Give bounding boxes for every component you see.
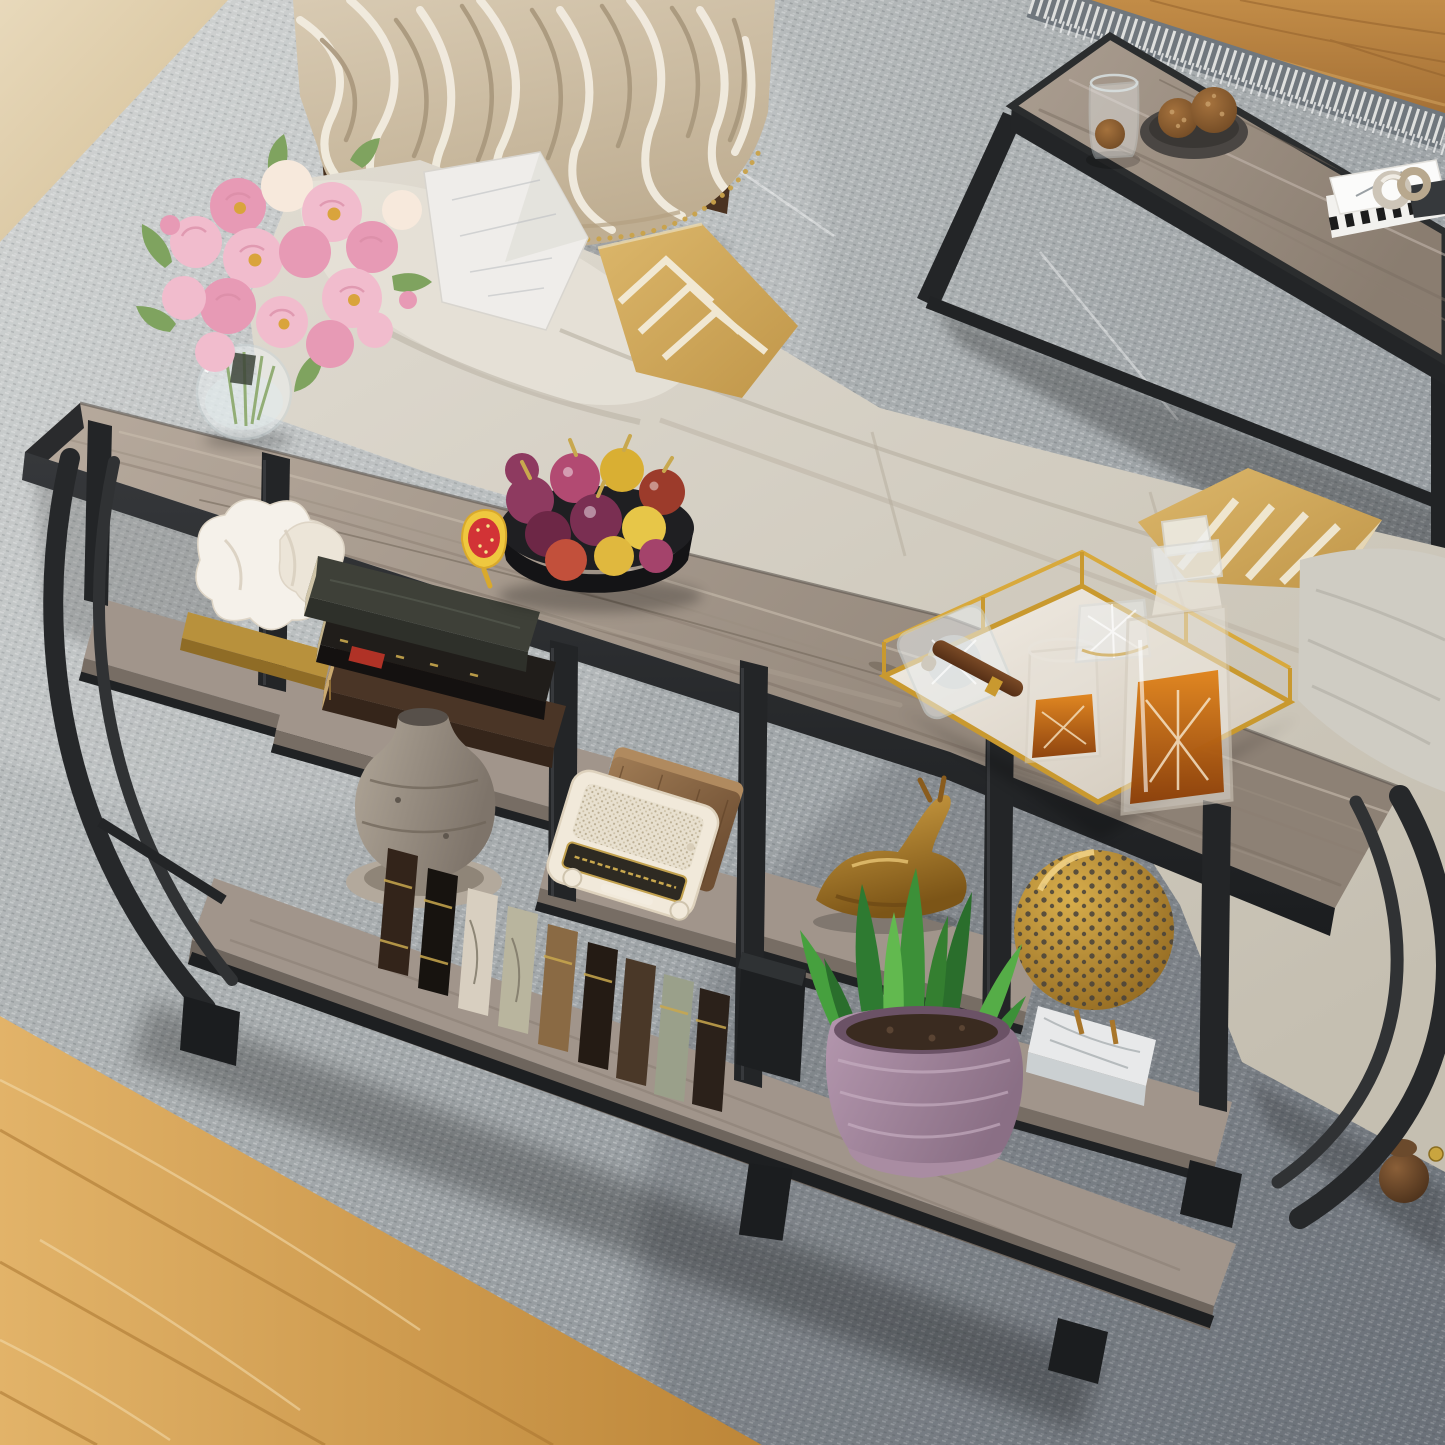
photo-stage: Living room photo: rustic gray-oak conso…	[0, 0, 1445, 1445]
gold-caster	[1429, 1147, 1443, 1161]
gold-sphere-decor	[1014, 850, 1174, 1106]
glass-jar	[1086, 75, 1140, 169]
black-bookend	[736, 952, 806, 1082]
pinecone-small	[1095, 119, 1125, 149]
pot-soil	[846, 1014, 998, 1050]
scene-image: Living room photo: rustic gray-oak conso…	[0, 0, 1445, 1445]
